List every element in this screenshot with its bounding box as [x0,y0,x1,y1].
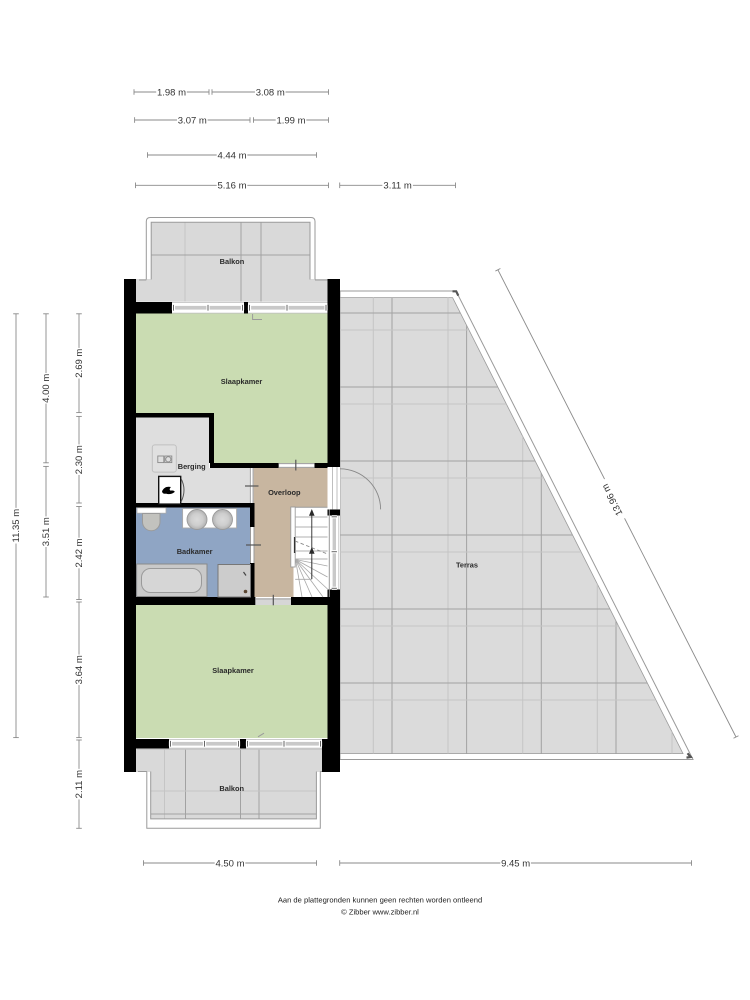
svg-text:Balkon: Balkon [220,257,245,266]
svg-text:2.11 m: 2.11 m [74,770,85,798]
svg-text:5.16 m: 5.16 m [217,181,246,192]
svg-text:3.11 m: 3.11 m [383,181,411,192]
svg-text:3.07 m: 3.07 m [178,115,207,126]
svg-text:Slaapkamer: Slaapkamer [221,377,263,386]
svg-text:1.98 m: 1.98 m [157,87,186,98]
svg-text:1.99 m: 1.99 m [276,115,305,126]
svg-text:Slaapkamer: Slaapkamer [212,666,254,675]
svg-text:Overloop: Overloop [268,488,301,497]
svg-text:3.64 m: 3.64 m [74,655,85,684]
svg-text:4.50 m: 4.50 m [215,858,244,869]
svg-text:11.35 m: 11.35 m [11,509,22,543]
svg-text:2.69 m: 2.69 m [74,349,85,378]
svg-text:2.42 m: 2.42 m [74,538,85,567]
svg-text:Balkon: Balkon [219,784,244,793]
svg-text:9.45 m: 9.45 m [501,858,530,869]
svg-text:Aan de plattegronden kunnen ge: Aan de plattegronden kunnen geen rechten… [278,896,482,905]
svg-text:© Zibber www.zibber.nl: © Zibber www.zibber.nl [341,908,419,917]
svg-text:4.44 m: 4.44 m [217,150,246,161]
svg-text:2.30 m: 2.30 m [74,445,85,474]
svg-text:Terras: Terras [456,561,478,570]
svg-text:Berging: Berging [178,462,206,471]
svg-text:Badkamer: Badkamer [177,547,213,556]
svg-text:4.00 m: 4.00 m [41,374,52,403]
svg-text:3.08 m: 3.08 m [256,87,285,98]
svg-text:3.51 m: 3.51 m [41,517,52,546]
